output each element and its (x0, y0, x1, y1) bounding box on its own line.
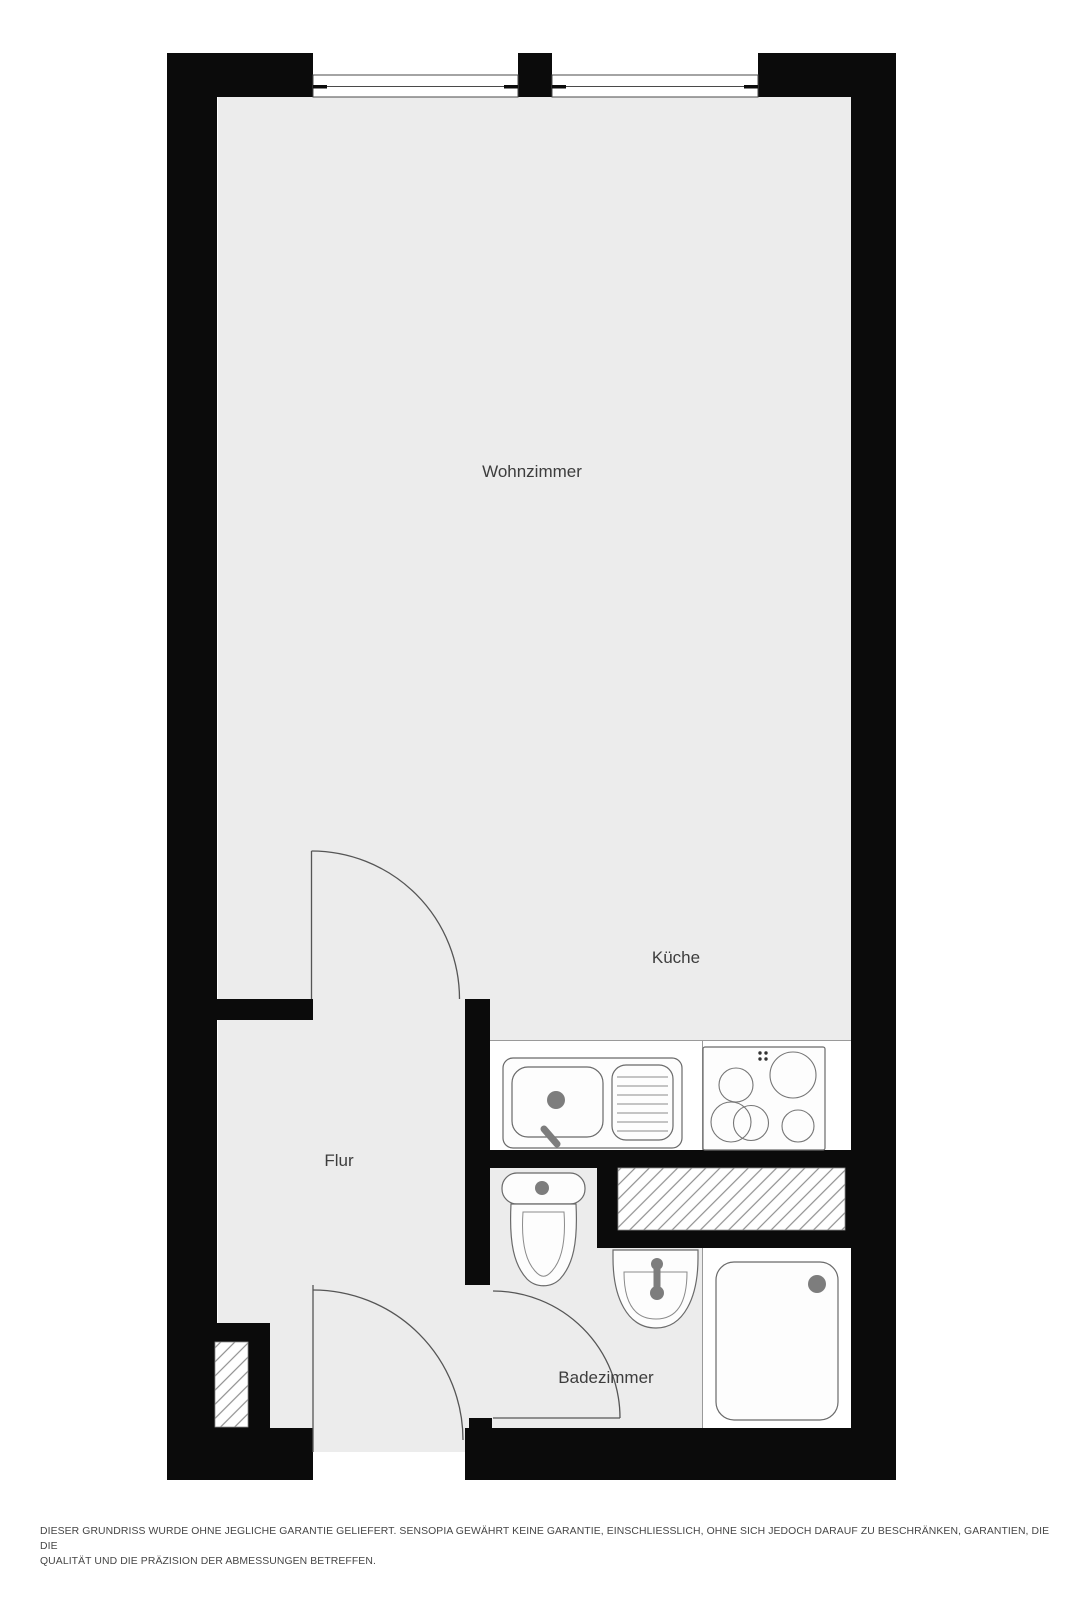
wall-shaft-bottom (597, 1230, 851, 1248)
label-kueche: Küche (652, 948, 700, 967)
floorplan-page: Wohnzimmer Küche Flur Badezimmer DIESER … (0, 0, 1067, 1600)
floor-livingroom-kitchen (218, 97, 851, 1040)
wall-top-right-block (758, 53, 896, 97)
label-badezimmer: Badezimmer (558, 1368, 654, 1387)
disclaimer-line-2: QUALITÄT UND DIE PRÄZISION DER ABMESSUNG… (40, 1554, 1050, 1569)
wall-hallway-bath (465, 999, 490, 1285)
wall-bottom-right (465, 1428, 896, 1480)
window-right (552, 75, 758, 97)
shaft-hatch-small (215, 1342, 248, 1427)
wall-window-pillar (518, 53, 552, 97)
shower-tray (716, 1262, 838, 1420)
wall-kitchen-bath-bar (490, 1150, 896, 1168)
shower-drain-icon (808, 1275, 826, 1293)
wall-bath-door-stub (469, 1418, 492, 1428)
sink-drainboard (612, 1065, 673, 1140)
label-flur: Flur (324, 1151, 354, 1170)
window-left (313, 75, 518, 97)
wall-hallway-stub (215, 999, 313, 1020)
shaft-hatch (618, 1168, 845, 1230)
stove-cooktop (703, 1047, 825, 1150)
disclaimer-line-1: DIESER GRUNDRISS WURDE OHNE JEGLICHE GAR… (40, 1524, 1050, 1554)
disclaimer: DIESER GRUNDRISS WURDE OHNE JEGLICHE GAR… (40, 1524, 1050, 1569)
wall-top-left-block (167, 53, 313, 97)
label-wohnzimmer: Wohnzimmer (482, 462, 582, 481)
wall-right (851, 97, 896, 1480)
wall-left (167, 53, 217, 1480)
sink-faucet-icon (547, 1091, 565, 1109)
wall-shaft-right-filler (845, 1168, 851, 1230)
kitchen-sink (503, 1058, 682, 1148)
floorplan-canvas: Wohnzimmer Küche Flur Badezimmer (0, 0, 1067, 1600)
